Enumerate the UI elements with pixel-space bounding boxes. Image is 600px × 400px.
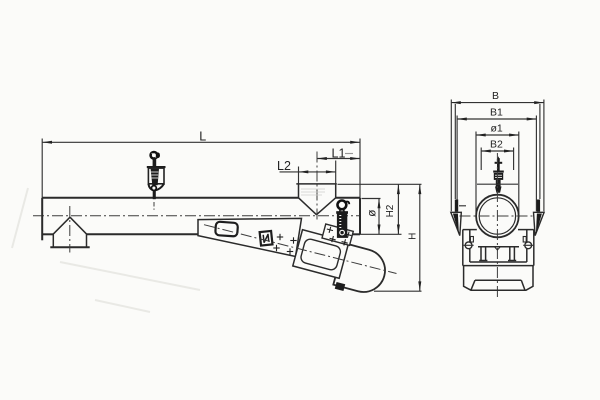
svg-text:H2: H2 — [385, 204, 396, 217]
svg-text:ø1: ø1 — [491, 123, 503, 135]
svg-text:ø: ø — [365, 209, 379, 217]
svg-text:L2: L2 — [277, 159, 291, 173]
svg-text:B1: B1 — [490, 107, 503, 119]
svg-text:H: H — [408, 233, 419, 240]
svg-text:L1: L1 — [332, 146, 346, 160]
svg-text:B: B — [492, 90, 499, 102]
svg-text:B2: B2 — [490, 139, 503, 151]
svg-text:L: L — [199, 129, 206, 143]
